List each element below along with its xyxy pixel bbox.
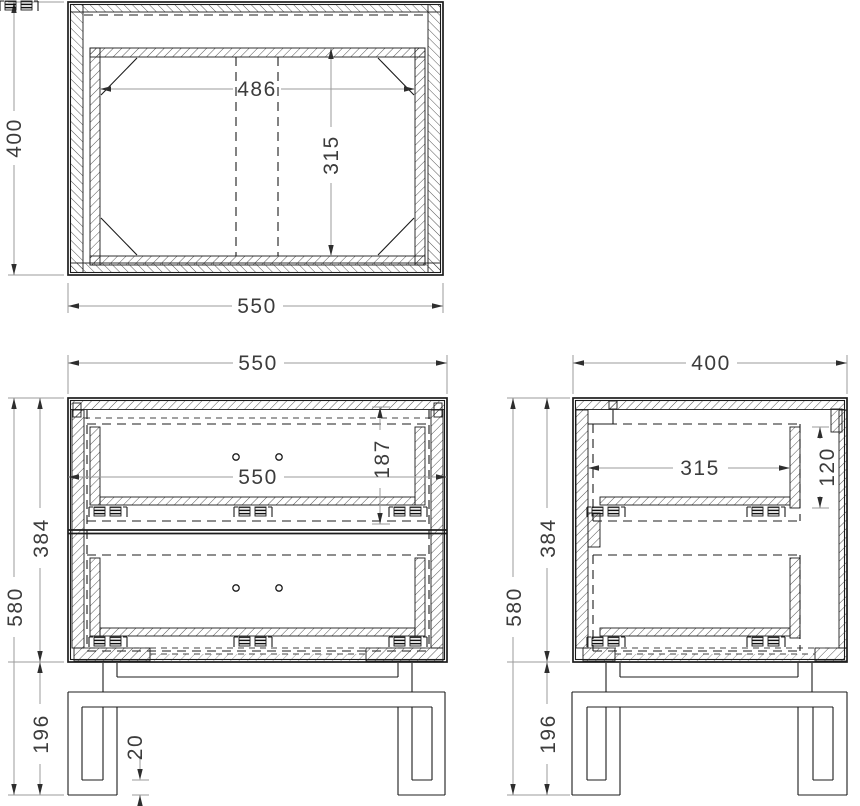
cabinet-drawing: 400 550 486 315	[0, 0, 860, 806]
dim-label-front-total-height: 580	[4, 587, 27, 627]
dim-front-foot-thickness-20: 20	[124, 734, 149, 806]
front-corner-block-right	[434, 403, 442, 417]
dim-label-front-base-height: 196	[30, 714, 53, 754]
side-front-rail-block	[588, 513, 600, 547]
dim-front-width-550: 550	[68, 352, 447, 394]
dim-label-front-carcass-height: 384	[30, 518, 53, 558]
side-drawer2-back	[790, 558, 800, 638]
drawer-divider	[68, 530, 447, 534]
drawer2-side-right	[415, 558, 425, 636]
dim-label-top-width: 550	[237, 295, 277, 318]
technical-drawing-canvas: 400 550 486 315	[0, 0, 860, 806]
drawer1-bottom	[100, 497, 415, 505]
inner-frame-left	[90, 48, 100, 265]
hatch-band-left	[71, 5, 84, 273]
front-bottom-block-right	[366, 648, 443, 661]
side-step-block	[609, 401, 617, 409]
dim-label-side-inner-depth: 315	[680, 457, 720, 480]
dim-side-depth-400: 400	[573, 352, 847, 394]
handle-hole	[276, 585, 282, 591]
dim-label-top-depth: 400	[3, 118, 26, 158]
dim-label-front-inner-width: 550	[238, 466, 278, 489]
dim-side-base-height-196: 196	[537, 662, 560, 795]
dim-label-front-foot-thickness: 20	[124, 734, 147, 760]
side-front-band	[576, 410, 588, 648]
drawer2-side-left	[90, 558, 100, 636]
drawer1-side-right	[415, 427, 425, 505]
front-carcass	[68, 398, 447, 662]
front-top-band	[71, 401, 445, 410]
dim-side-inner-depth-315: 315	[588, 457, 790, 480]
dim-top-inner-width-486: 486	[100, 78, 415, 101]
handle-hole	[233, 585, 239, 591]
dim-label-top-inner-width: 486	[237, 78, 277, 101]
dim-label-top-inner-depth: 315	[320, 135, 343, 175]
side-drawer1-back	[790, 427, 800, 508]
dim-top-depth-400: 400	[3, 2, 64, 275]
handle-hole	[233, 454, 239, 460]
top-view: 400 550 486 315	[3, 2, 443, 318]
front-view: 550 550 187 384 580	[4, 352, 447, 806]
dim-top-inner-depth-315: 315	[320, 48, 343, 256]
inner-frame-top	[90, 48, 425, 57]
drawer1-side-left	[90, 427, 100, 505]
dim-top-width-550: 550	[68, 283, 443, 318]
side-legs	[572, 663, 847, 795]
dim-label-front-drawer-height: 187	[371, 439, 394, 479]
side-back-band	[839, 410, 847, 648]
side-carcass	[573, 398, 847, 662]
side-front-step	[588, 410, 613, 424]
dim-label-side-base-height: 196	[537, 714, 560, 754]
dim-front-base-height-196: 196	[30, 662, 53, 795]
hatch-band-right	[428, 5, 441, 273]
front-bottom-strip	[150, 654, 366, 661]
inner-frame-bottom	[90, 256, 425, 265]
dim-side-drawer-inner-height-120: 120	[812, 427, 839, 508]
inner-frame-right	[415, 48, 425, 265]
handle-hole	[276, 454, 282, 460]
hatch-band-top	[71, 5, 441, 13]
front-bottom-block-left	[74, 648, 150, 661]
drawer2-bottom	[100, 628, 415, 636]
side-bottom-block-left	[583, 648, 615, 661]
front-corner-block-left	[73, 403, 81, 417]
dim-label-side-depth: 400	[691, 352, 731, 375]
dim-label-front-width: 550	[238, 352, 278, 375]
front-right-band	[431, 410, 443, 648]
top-view-carcass	[68, 2, 443, 275]
side-bottom-block-right	[815, 648, 847, 661]
front-legs	[68, 663, 445, 795]
dim-label-side-total-height: 580	[503, 587, 526, 627]
side-drawer1-bottom	[600, 497, 790, 505]
side-drawer2-bottom	[600, 628, 790, 636]
front-left-band	[72, 410, 84, 648]
dim-label-side-carcass-height: 384	[537, 518, 560, 558]
side-back-rail-block	[831, 409, 842, 432]
side-view: 400 315 120 384 580	[503, 352, 847, 795]
dim-label-side-drawer-inner-height: 120	[816, 447, 839, 487]
side-bottom-strip	[615, 654, 815, 661]
